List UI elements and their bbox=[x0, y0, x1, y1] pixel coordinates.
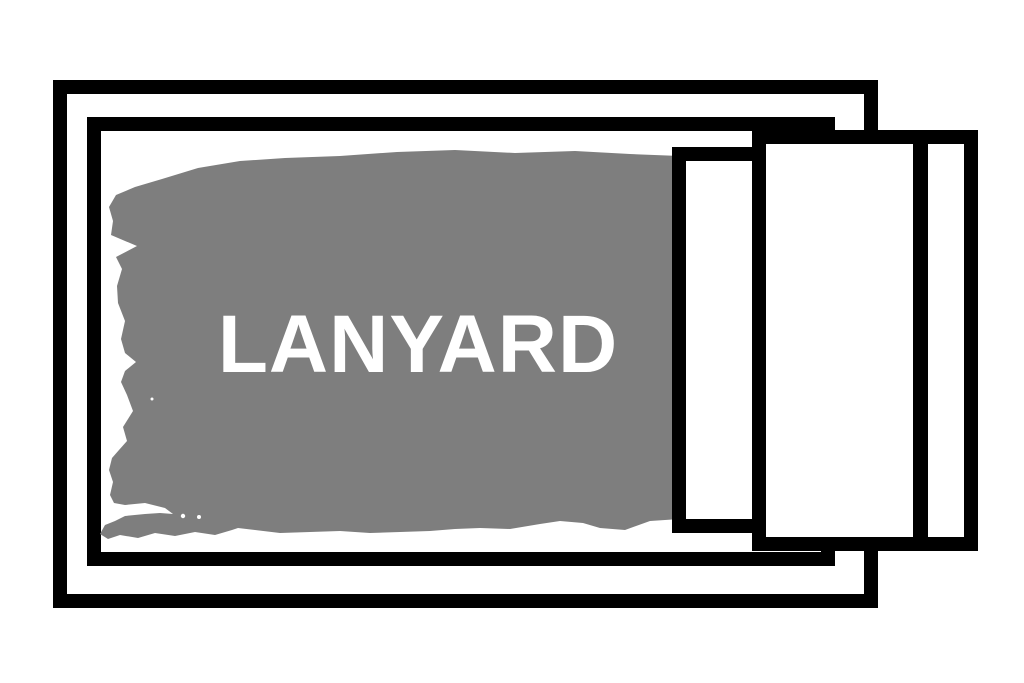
brush-pinhole bbox=[181, 514, 185, 518]
lanyard-illustration: LANYARD bbox=[0, 0, 1024, 683]
clasp-large-rect bbox=[752, 130, 978, 551]
lanyard-label: LANYARD bbox=[218, 299, 618, 390]
brush-pinhole bbox=[197, 515, 201, 519]
clasp-divider-bar bbox=[913, 144, 928, 537]
brush-pinhole bbox=[151, 398, 154, 401]
